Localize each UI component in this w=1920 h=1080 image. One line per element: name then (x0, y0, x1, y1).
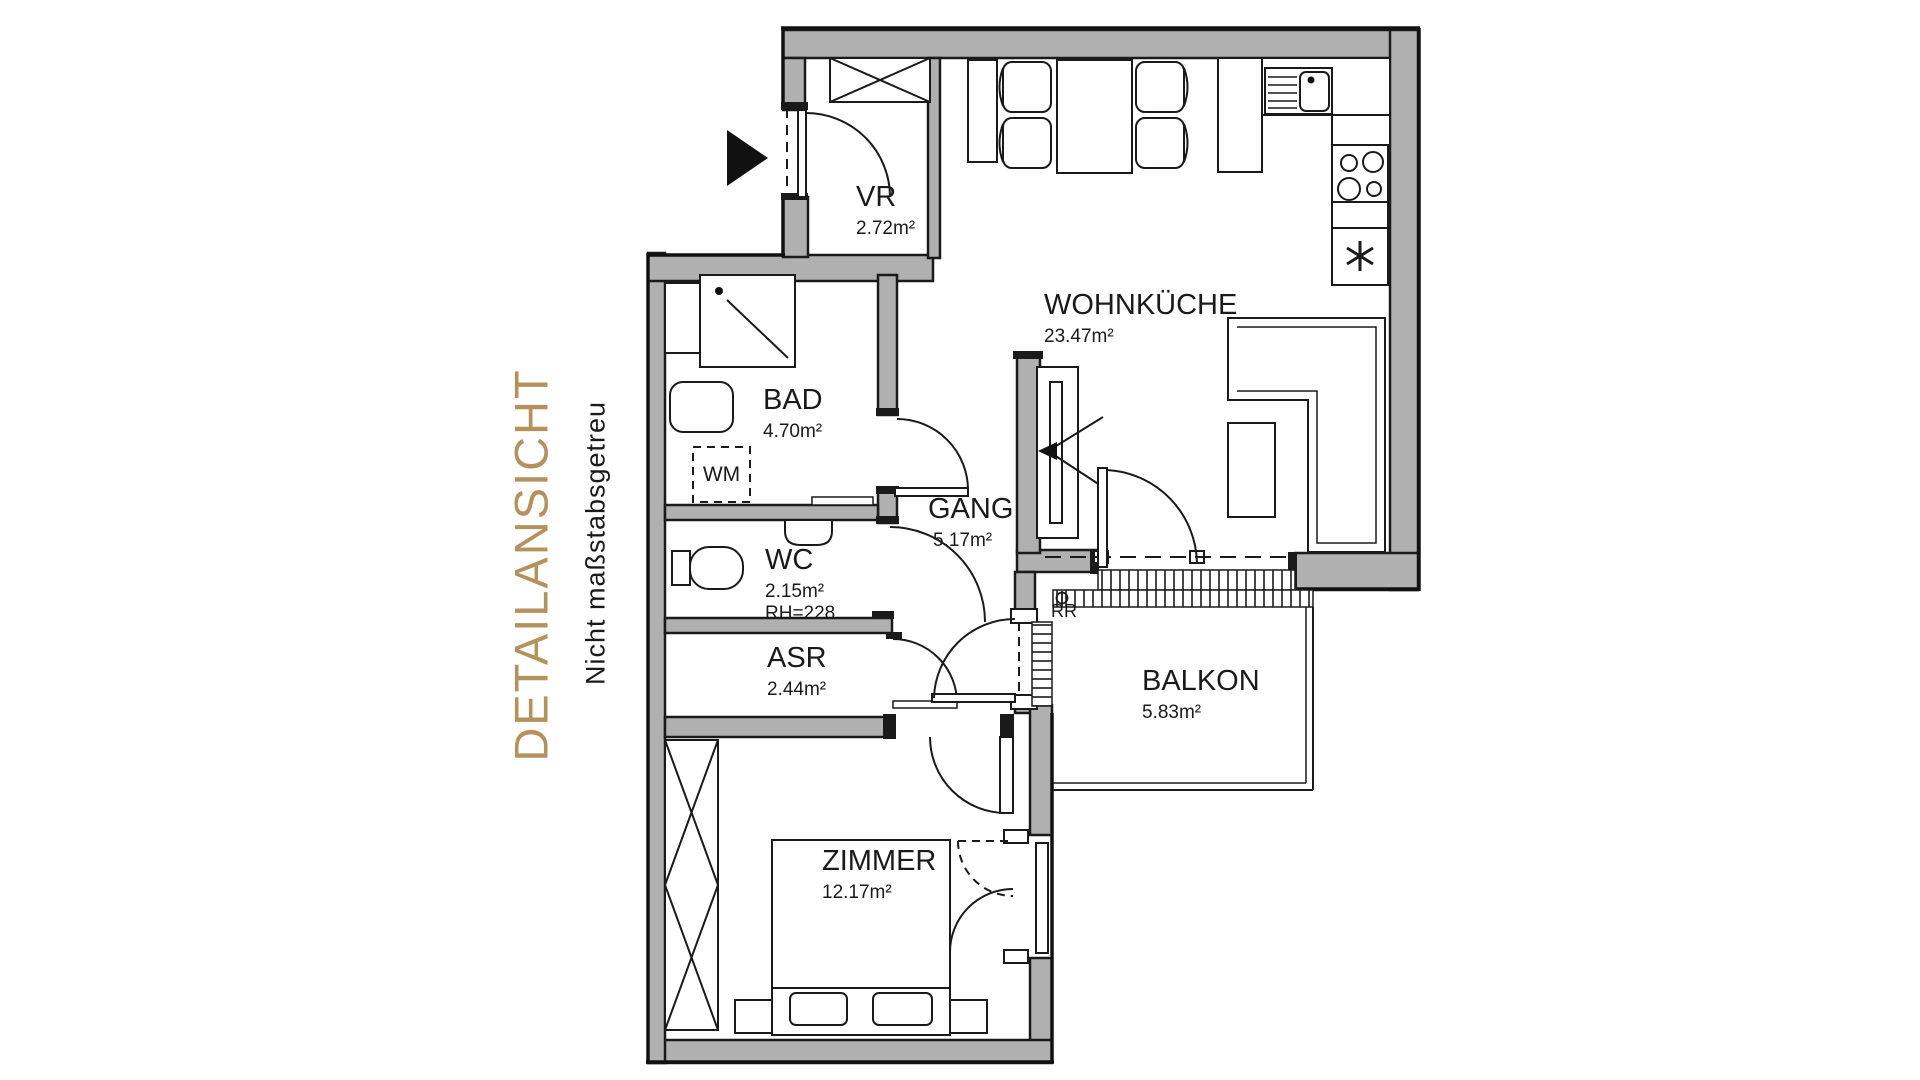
room-area: 5.83m² (1142, 703, 1260, 722)
vr-wardrobe (830, 58, 930, 102)
room-name: VR (856, 183, 915, 212)
cap-wc-door-top (876, 516, 899, 524)
room-name: ZIMMER (822, 847, 936, 876)
balcony-door-swing (1107, 470, 1197, 563)
toilet-tank (672, 551, 690, 585)
cap-bad-door-top (876, 408, 899, 416)
wall-zimmer-north (665, 717, 885, 737)
room-label-balkon: BALKON 5.83m² (1142, 667, 1260, 722)
wall-vr-door-post (783, 197, 808, 257)
kitchen-sideboard (968, 60, 997, 162)
not-to-scale-note: Nicht maßstabsgetreu (581, 401, 612, 685)
room-name: GANG (928, 495, 1013, 524)
nightstand (735, 1000, 772, 1033)
kitchen-unit-spacer (1332, 202, 1388, 228)
washing-machine-label: WM (693, 447, 750, 502)
kitchen-tall-cabinet (1218, 58, 1262, 172)
room-name: WC (765, 546, 835, 575)
cap-zimmer-door-right (1000, 714, 1014, 739)
entry-arrow-icon (727, 130, 768, 186)
balcony-door-leaf (1098, 468, 1107, 567)
bad-shelf (812, 497, 873, 505)
room-label-asr: ASR 2.44m² (767, 644, 827, 699)
bed-pillow (873, 993, 932, 1025)
zimmer-door (930, 737, 1013, 813)
dining-table (1057, 60, 1132, 173)
kitchen-sink (1265, 68, 1332, 114)
zimmer-door-swing (930, 737, 1006, 813)
outline-vr (648, 28, 785, 257)
cap-wc-door-bottom (872, 611, 894, 619)
wall-bad-east-upper (878, 275, 897, 415)
room-area: 5.17m² (933, 531, 1013, 550)
wall-right (1390, 30, 1418, 590)
wall-kitchen-south-east (1295, 553, 1418, 590)
zimmer-french-window (950, 841, 1048, 953)
stove-burner (1367, 182, 1381, 196)
shower (700, 275, 795, 367)
room-area: 12.17m² (822, 883, 936, 902)
room-name: ASR (767, 644, 827, 673)
room-area: 2.72m² (856, 219, 915, 238)
stove-burner (1363, 152, 1383, 172)
walls (648, 30, 1418, 1063)
bad-shaft (665, 283, 700, 353)
room-height-note: RH=228 (765, 604, 835, 623)
zimmer-door-leaf (1000, 737, 1013, 813)
wall-bad-wc (665, 505, 878, 520)
sink-faucet (1308, 77, 1315, 84)
jamb-gang-balcony-top (1011, 609, 1037, 623)
sink-basin (1300, 72, 1329, 111)
balcony-threshold-kitchen (1098, 570, 1295, 590)
detail-view-title: DETAILANSICHT (504, 368, 559, 761)
room-name: BAD (763, 386, 823, 415)
wc-basin (785, 520, 832, 545)
window-glass (1036, 843, 1048, 953)
dining-set (1000, 60, 1188, 173)
room-label-bad: BAD 4.70m² (763, 386, 823, 441)
cap-zimmer-door-left (883, 714, 896, 739)
dining-chair (1136, 62, 1184, 112)
room-area: 2.44m² (767, 680, 827, 699)
rain-pipe-label: RR (1051, 602, 1077, 620)
balcony-edge-grating (1053, 590, 1313, 607)
room-name: WOHNKÜCHE (1044, 291, 1237, 320)
wall-top (783, 30, 1418, 58)
wall-left (648, 253, 665, 1063)
kitchen-fridge (1332, 228, 1388, 285)
bad-door-swing (897, 419, 968, 490)
coffee-table (1228, 423, 1275, 517)
kitchen-counter-right (1332, 115, 1390, 145)
wardrobe-outline (665, 740, 718, 1030)
dining-chair (1003, 62, 1051, 112)
bed-pillow (790, 993, 847, 1025)
wall-zimmer-east-upper (1030, 705, 1052, 835)
wall-bottom (648, 1040, 1052, 1063)
room-name: BALKON (1142, 667, 1260, 696)
washbasin (670, 382, 733, 432)
room-label-wohnkueche: WOHNKÜCHE 23.47m² (1044, 291, 1237, 346)
zimmer-wardrobe (665, 740, 718, 1030)
room-label-gang: GANG 5.17m² (928, 495, 1013, 550)
shower-head (715, 287, 723, 295)
window-swing (950, 889, 1013, 952)
room-label-zimmer: ZIMMER 12.17m² (822, 847, 936, 902)
room-label-wc: WC 2.15m² RH=228 (765, 546, 835, 623)
kitchen-stove (1332, 145, 1388, 202)
jamb-french-window-bottom (1004, 950, 1028, 963)
room-label-vr: VR 2.72m² (856, 183, 915, 238)
room-area: 23.47m² (1044, 327, 1237, 346)
cap-kitchen-wall-top (1013, 351, 1043, 359)
floor-plan-page: DETAILANSICHT Nicht maßstabsgetreu VR 2.… (0, 0, 1920, 1080)
window-swing-dashed (958, 841, 1013, 896)
gang-balcony-door-leaf (932, 694, 1015, 702)
room-area: 2.15m² (765, 582, 835, 601)
dining-chair (1136, 118, 1184, 168)
dining-chair (1003, 118, 1051, 168)
cap-entry-top (781, 102, 808, 110)
gang-balcony-threshold (1032, 622, 1052, 706)
nightstand (950, 1000, 987, 1033)
sliding-door (1037, 367, 1103, 538)
entry-door-leaf (798, 110, 806, 197)
gang-balcony-door-swing (934, 619, 1015, 698)
stove-burner (1341, 155, 1357, 171)
toilet-bowl (690, 547, 743, 589)
cap-asr-door-top (886, 632, 902, 639)
stove-burner (1338, 178, 1360, 200)
room-area: 4.70m² (763, 422, 823, 441)
